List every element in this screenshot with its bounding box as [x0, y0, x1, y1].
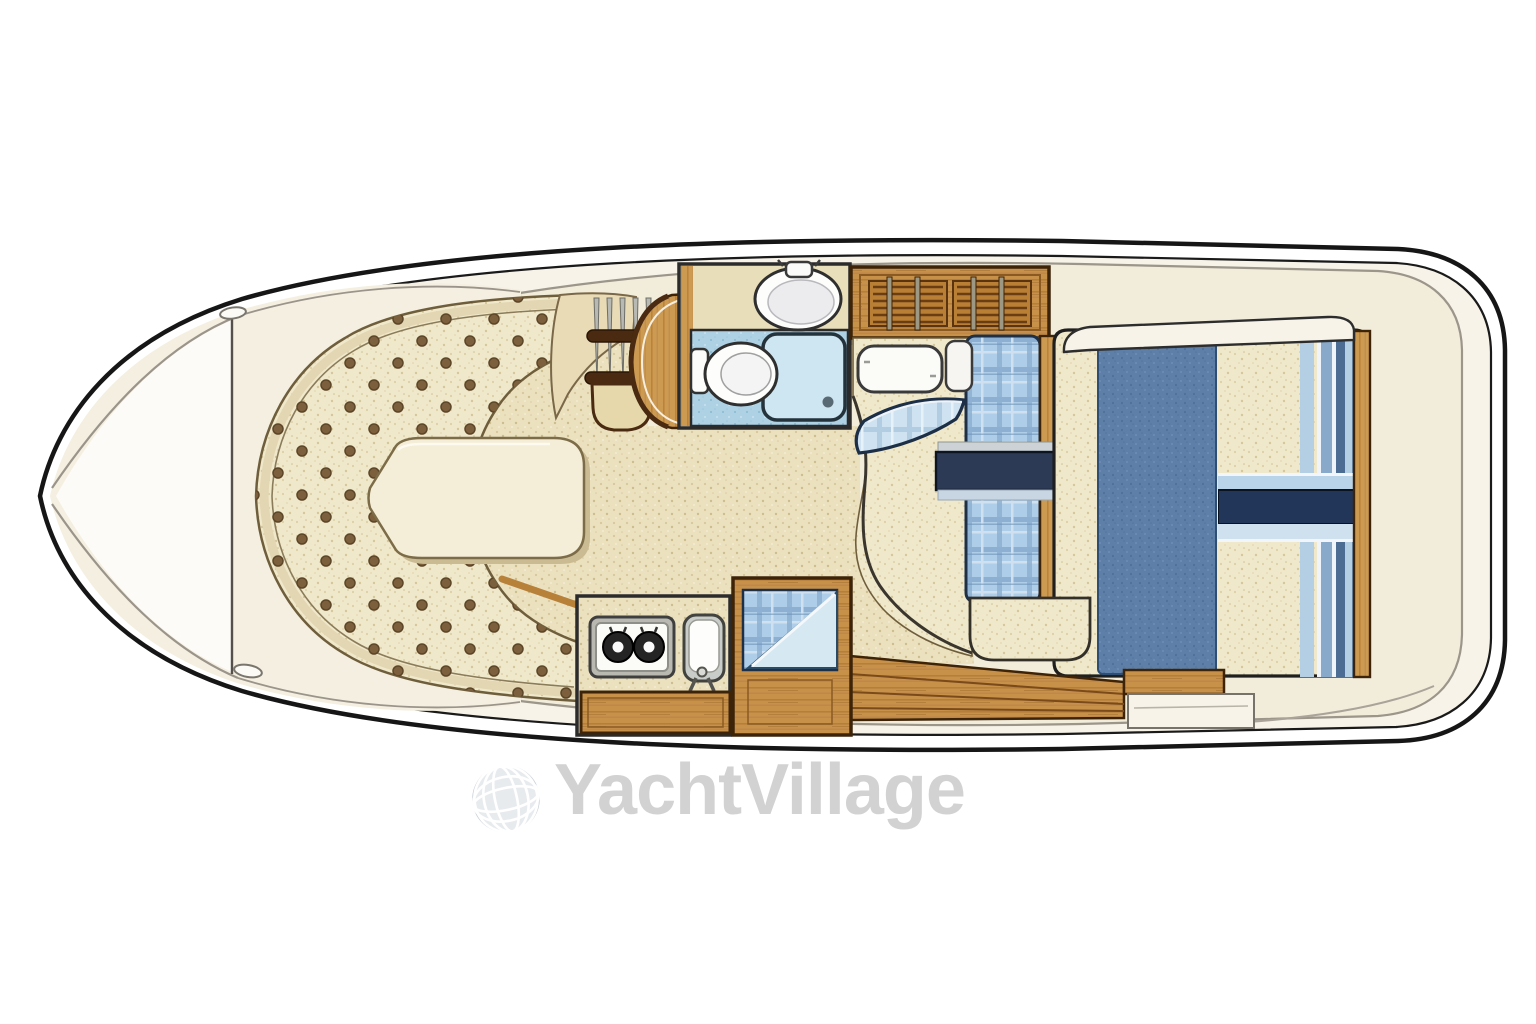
louvered-cabinet	[851, 267, 1049, 345]
sink-faucet	[786, 262, 812, 277]
white-step	[1128, 694, 1254, 728]
aft-berth-blue-runner	[1098, 332, 1216, 674]
yacht-floorplan-drawing	[0, 0, 1536, 1024]
galley	[577, 596, 730, 735]
galley-stove	[590, 617, 674, 677]
louver-panel-right	[953, 277, 1031, 330]
aft-berth-wood-rail	[1354, 331, 1370, 677]
yacht-floorplan-canvas: YachtVillage	[0, 0, 1536, 1024]
main-cabin-floor	[598, 426, 860, 598]
mid-berth-foot-seat	[970, 598, 1090, 660]
blanket-silver-stripe-bottom	[938, 490, 1064, 500]
head-compartment	[679, 260, 850, 428]
wood-step	[1124, 670, 1224, 694]
blanket-silver-stripe-top	[938, 442, 1064, 452]
blanket-navy-band	[936, 452, 1064, 490]
mid-berth-pillow	[858, 346, 942, 392]
quarter-berth	[733, 578, 851, 735]
mid-berth-cushion	[946, 341, 972, 391]
louver-panel-left	[869, 277, 947, 330]
galley-sink	[684, 615, 724, 691]
shower-drain	[823, 397, 834, 408]
aft-berth	[1054, 317, 1370, 677]
galley-faucet	[698, 668, 707, 677]
v-berth-filler-cushion	[369, 438, 585, 558]
